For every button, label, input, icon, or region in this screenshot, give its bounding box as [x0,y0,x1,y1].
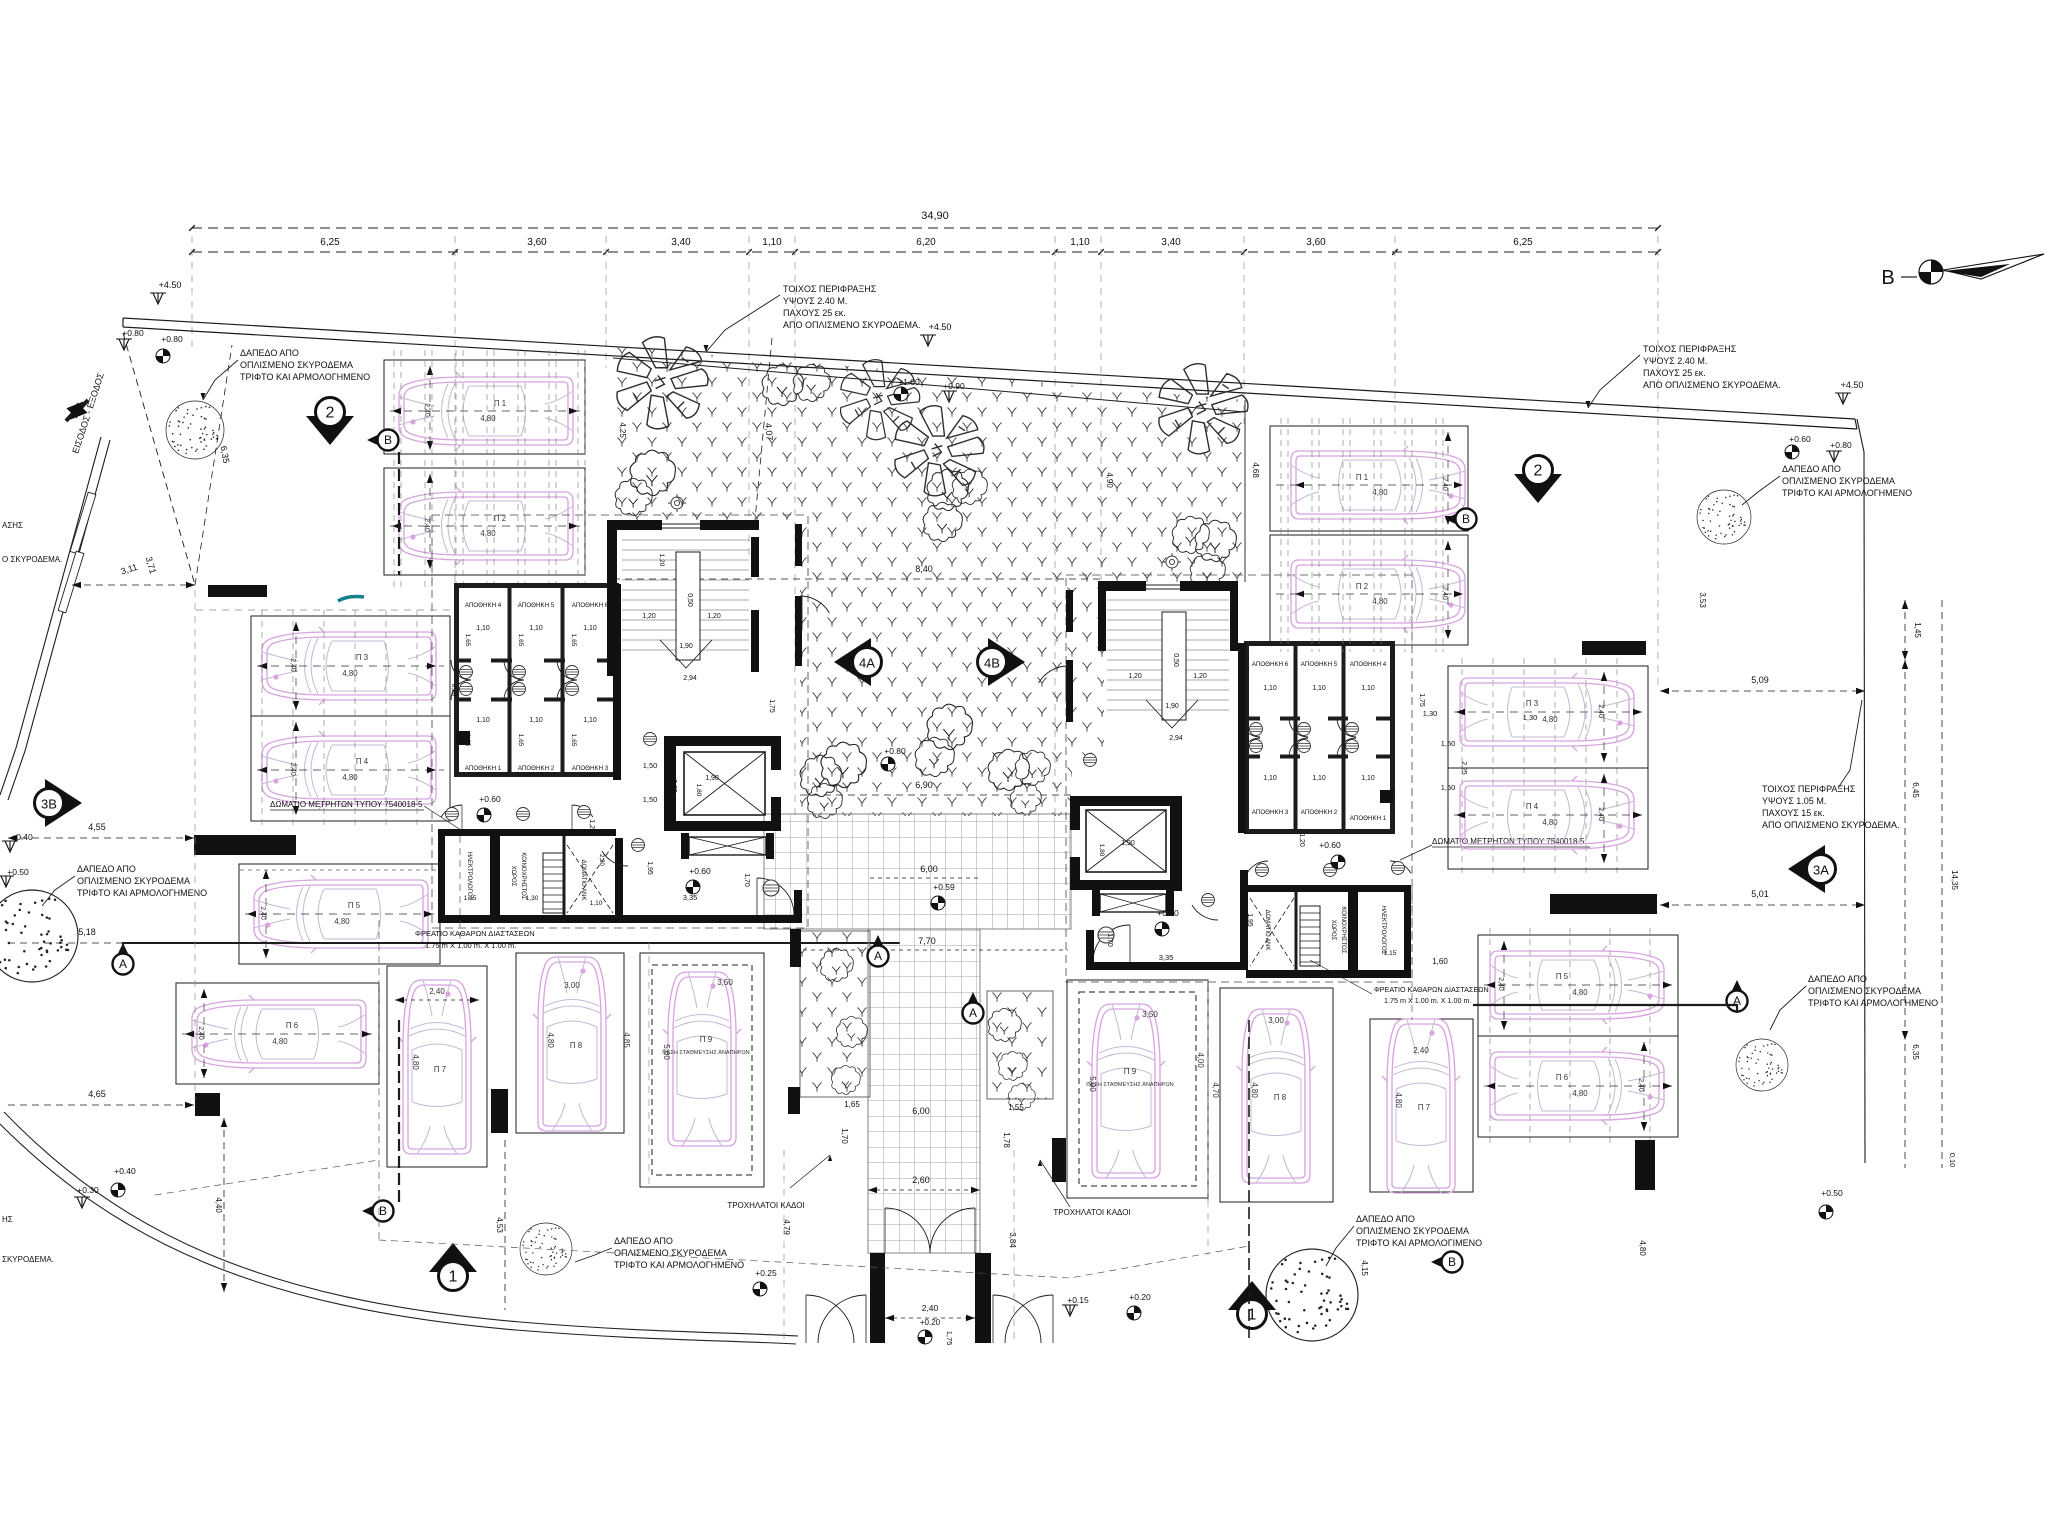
svg-text:B: B [384,433,392,447]
svg-text:ΟΠΛΙΣΜΕΝΟ ΣΚΥΡΟΔΕΜΑ: ΟΠΛΙΣΜΕΝΟ ΣΚΥΡΟΔΕΜΑ [240,360,353,370]
svg-text:1,70: 1,70 [1106,933,1113,947]
svg-text:6,00: 6,00 [920,864,938,874]
svg-text:1,30: 1,30 [526,895,539,902]
svg-text:A: A [874,949,882,963]
svg-text:2,40: 2,40 [1597,807,1604,821]
svg-text:1,78: 1,78 [1002,1132,1011,1148]
svg-text:5,00: 5,00 [662,1044,671,1060]
svg-text:ΥΨΟΥΣ 2.40 Μ.: ΥΨΟΥΣ 2.40 Μ. [1643,356,1707,366]
svg-text:1,60: 1,60 [1432,957,1448,966]
svg-text:3,50: 3,50 [717,978,733,987]
svg-text:+1.00: +1.00 [898,377,920,387]
svg-text:2,40: 2,40 [1497,977,1504,991]
svg-text:1,65: 1,65 [464,634,471,647]
svg-text:2: 2 [326,405,335,422]
svg-text:3,84: 3,84 [1008,1232,1017,1248]
svg-text:3B: 3B [41,797,57,812]
svg-text:ΗΛΕΚΤΡΟΛΟΓΟΣ: ΗΛΕΚΤΡΟΛΟΓΟΣ [1380,906,1386,955]
svg-text:5,01: 5,01 [1751,889,1769,899]
svg-text:+0.80: +0.80 [122,328,144,338]
svg-text:+0.50: +0.50 [1821,1188,1843,1198]
svg-text:Π 3: Π 3 [356,653,368,662]
svg-text:Π 5: Π 5 [1556,972,1569,981]
svg-text:7,70: 7,70 [918,936,936,946]
svg-text:4,15: 4,15 [1360,1260,1369,1276]
svg-text:4,80: 4,80 [342,669,358,678]
svg-text:+0.59: +0.59 [933,882,955,892]
svg-text:1,10: 1,10 [1361,775,1375,782]
svg-text:1,10: 1,10 [1263,775,1277,782]
svg-text:2,40: 2,40 [1413,1046,1429,1055]
svg-text:ΔΑΠΕΔΟ ΑΠΟ: ΔΑΠΕΔΟ ΑΠΟ [614,1236,673,1246]
svg-text:2,40: 2,40 [289,658,296,672]
svg-text:4A: 4A [859,656,875,671]
svg-text:3,60: 3,60 [527,237,547,248]
svg-text:3,00: 3,00 [564,981,580,990]
svg-text:ΑΠΟΘΗΚΗ 1: ΑΠΟΘΗΚΗ 1 [465,765,502,772]
svg-text:ΠΑΧΟΥΣ 25 εκ.: ΠΑΧΟΥΣ 25 εκ. [1643,368,1706,378]
svg-text:ΤΡΙΦΤΟ ΚΑΙ ΑΡΜΟΛΟΓΗΜΕΝΟ: ΤΡΙΦΤΟ ΚΑΙ ΑΡΜΟΛΟΓΗΜΕΝΟ [77,888,207,898]
svg-text:A: A [969,1006,977,1020]
svg-text:1,10: 1,10 [1312,685,1326,692]
svg-text:1,20: 1,20 [1128,673,1142,680]
svg-text:0,10: 0,10 [1948,1153,1957,1168]
svg-text:1,50: 1,50 [643,795,658,804]
svg-text:Π 9: Π 9 [700,1035,713,1044]
svg-text:ΟΠΛΙΣΜΕΝΟ ΣΚΥΡΟΔΕΜΑ: ΟΠΛΙΣΜΕΝΟ ΣΚΥΡΟΔΕΜΑ [1808,986,1921,996]
svg-text:ΤΡΙΦΤΟ ΚΑΙ ΑΡΜΟΛΟΓΗΜΕΝΟ: ΤΡΙΦΤΟ ΚΑΙ ΑΡΜΟΛΟΓΗΜΕΝΟ [1782,488,1912,498]
svg-text:1,10: 1,10 [583,717,597,724]
svg-text:1,10: 1,10 [529,625,543,632]
svg-text:4,79: 4,79 [782,1219,791,1235]
svg-text:4,80: 4,80 [1250,1082,1259,1098]
svg-text:ΑΠΟΘΗΚΗ 4: ΑΠΟΘΗΚΗ 4 [1350,661,1387,668]
svg-text:+4.50: +4.50 [929,322,952,332]
svg-text:5,18: 5,18 [78,927,96,937]
svg-text:Π 7: Π 7 [434,1065,446,1074]
svg-text:2,40: 2,40 [1597,704,1604,718]
svg-text:+0.60: +0.60 [1157,908,1179,918]
svg-text:ΑΠΟΘΗΚΗ 6: ΑΠΟΘΗΚΗ 6 [1252,661,1289,668]
svg-text:ΗΛΕΚΤΡΟΛΟΓΟΣ: ΗΛΕΚΤΡΟΛΟΓΟΣ [466,852,472,901]
svg-text:3,50: 3,50 [1142,1010,1158,1019]
svg-text:Π 8: Π 8 [570,1041,582,1050]
svg-text:4,00: 4,00 [1196,1052,1205,1068]
svg-text:ΑΠΟΘΗΚΗ 3: ΑΠΟΘΗΚΗ 3 [572,765,609,772]
svg-text:ΗΣ: ΗΣ [2,1215,13,1224]
svg-text:4,55: 4,55 [88,822,106,832]
svg-text:ΤΡΙΦΤΟ ΚΑΙ ΑΡΜΟΛΟΓΗΜΕΝΟ: ΤΡΙΦΤΟ ΚΑΙ ΑΡΜΟΛΟΓΗΜΕΝΟ [240,372,370,382]
svg-text:0,90: 0,90 [450,684,457,697]
svg-text:4,90: 4,90 [1105,472,1114,488]
svg-text:+0.60: +0.60 [1319,840,1341,850]
svg-text:4,80: 4,80 [1542,715,1558,724]
svg-text:3,40: 3,40 [1161,237,1181,248]
svg-text:ΦΡΕΑΤΙΟ ΚΑΘΑΡΩΝ ΔΙΑΣΤΑΣΕΩΝ: ΦΡΕΑΤΙΟ ΚΑΘΑΡΩΝ ΔΙΑΣΤΑΣΕΩΝ [415,929,535,938]
svg-text:ΟΠΛΙΣΜΕΝΟ ΣΚΥΡΟΔΕΜΑ: ΟΠΛΙΣΜΕΝΟ ΣΚΥΡΟΔΕΜΑ [1356,1226,1469,1236]
svg-text:Π 6: Π 6 [1556,1073,1568,1082]
svg-text:2,40: 2,40 [429,987,445,996]
svg-text:4,80: 4,80 [342,773,358,782]
svg-text:ΔΑΠΕΔΟ ΑΠΟ: ΔΑΠΕΔΟ ΑΠΟ [240,348,299,358]
svg-text:4,68: 4,68 [1251,462,1260,478]
svg-text:4,80: 4,80 [546,1032,555,1048]
svg-text:B: B [1462,512,1470,526]
svg-text:1,75: 1,75 [945,1331,954,1346]
svg-text:0,50: 0,50 [1172,653,1179,667]
svg-text:3,40: 3,40 [671,237,691,248]
svg-text:ΥΨΟΥΣ 2.40 Μ.: ΥΨΟΥΣ 2.40 Μ. [783,296,847,306]
svg-text:+4.50: +4.50 [1841,380,1864,390]
svg-text:ΑΠΟΘΗΚΗ 4: ΑΠΟΘΗΚΗ 4 [465,602,502,609]
svg-text:1,10: 1,10 [1312,775,1326,782]
svg-text:Π 4: Π 4 [356,757,369,766]
svg-text:4,40: 4,40 [214,1197,223,1213]
svg-text:1,65: 1,65 [517,734,524,747]
svg-text:+0.80: +0.80 [1830,440,1852,450]
svg-text:Π 2: Π 2 [1356,582,1368,591]
svg-text:+0.25: +0.25 [755,1268,777,1278]
svg-text:ΧΩΡΟΣ: ΧΩΡΟΣ [1330,920,1336,941]
svg-text:Π 7: Π 7 [1418,1103,1430,1112]
svg-text:ΔΑΠΕΔΟ ΑΠΟ: ΔΑΠΕΔΟ ΑΠΟ [77,864,136,874]
svg-text:4,80: 4,80 [272,1037,288,1046]
svg-text:ΘΕΣΗ ΣΤΑΘΜΕΥΣΗΣ ΑΝΑΠΗΡΩΝ: ΘΕΣΗ ΣΤΑΘΜΕΥΣΗΣ ΑΝΑΠΗΡΩΝ [662,1050,749,1056]
svg-text:2,40: 2,40 [1637,1078,1644,1092]
svg-text:4,70: 4,70 [1211,1082,1220,1098]
svg-text:4,85: 4,85 [622,1032,631,1048]
svg-text:2,94: 2,94 [1169,735,1183,742]
svg-text:2,40: 2,40 [922,1303,939,1313]
svg-text:1,75: 1,75 [768,699,775,713]
svg-text:ΤΟΙΧΟΣ ΠΕΡΙΦΡΑΞΗΣ: ΤΟΙΧΟΣ ΠΕΡΙΦΡΑΞΗΣ [1762,784,1856,794]
svg-text:ΠΑΧΟΥΣ 25 εκ.: ΠΑΧΟΥΣ 25 εκ. [783,308,846,318]
svg-text:6,90: 6,90 [915,780,933,790]
svg-text:ΦΡΕΑΤΙΟ ΚΑΘΑΡΩΝ ΔΙΑΣΤΑΣΕΩΝ: ΦΡΕΑΤΙΟ ΚΑΘΑΡΩΝ ΔΙΑΣΤΑΣΕΩΝ [1374,985,1489,994]
svg-text:5,00: 5,00 [1088,1076,1097,1092]
svg-text:+0.90: +0.90 [943,381,965,391]
svg-text:ΤΡΙΦΤΟ ΚΑΙ ΑΡΜΟΛΟΓΗΜΕΝΟ: ΤΡΙΦΤΟ ΚΑΙ ΑΡΜΟΛΟΓΗΜΕΝΟ [1808,998,1938,1008]
svg-text:1,65: 1,65 [570,634,577,647]
svg-text:1,20: 1,20 [642,613,656,620]
svg-text:1,65: 1,65 [570,734,577,747]
svg-text:1,90: 1,90 [679,643,693,650]
svg-text:1,10: 1,10 [583,625,597,632]
svg-text:34,90: 34,90 [921,210,949,222]
svg-text:1,10: 1,10 [1070,237,1090,248]
svg-text:+0.80: +0.80 [161,334,183,344]
svg-text:4,80: 4,80 [1572,1089,1588,1098]
svg-text:Π 5: Π 5 [348,901,361,910]
svg-text:2,40: 2,40 [423,403,430,417]
svg-text:ΔΩΜΑΤΙΟ ΑΝΚ: ΔΩΜΑΤΙΟ ΑΝΚ [1264,910,1270,951]
svg-text:Π 9: Π 9 [1124,1067,1137,1076]
svg-text:1,30: 1,30 [1523,713,1538,722]
svg-text:Π 6: Π 6 [286,1021,298,1030]
svg-text:+0.20: +0.20 [920,1318,941,1327]
svg-text:ΧΩΡΟΣ: ΧΩΡΟΣ [510,866,516,887]
svg-text:1,90: 1,90 [705,775,719,782]
svg-text:ΔΑΠΕΔΟ ΑΠΟ: ΔΑΠΕΔΟ ΑΠΟ [1808,974,1867,984]
svg-text:6,45: 6,45 [1911,782,1920,798]
svg-text:ΟΠΛΙΣΜΕΝΟ ΣΚΥΡΟΔΕΜΑ: ΟΠΛΙΣΜΕΝΟ ΣΚΥΡΟΔΕΜΑ [1782,476,1895,486]
svg-text:ΑΠΟ ΟΠΛΙΣΜΕΝΟ ΣΚΥΡΟΔΕΜΑ.: ΑΠΟ ΟΠΛΙΣΜΕΝΟ ΣΚΥΡΟΔΕΜΑ. [1643,380,1780,390]
svg-text:1,95: 1,95 [1246,913,1253,927]
svg-text:1,80: 1,80 [1098,844,1105,857]
svg-text:1,20: 1,20 [658,554,665,567]
svg-text:+0.40: +0.40 [114,1166,136,1176]
svg-text:4,80: 4,80 [1372,488,1388,497]
svg-text:1,45: 1,45 [1913,622,1922,638]
svg-text:ΤΟΙΧΟΣ ΠΕΡΙΦΡΑΞΗΣ: ΤΟΙΧΟΣ ΠΕΡΙΦΡΑΞΗΣ [783,284,877,294]
svg-text:8,40: 8,40 [915,564,933,574]
svg-text:+4.50: +4.50 [159,280,182,290]
svg-text:1,10: 1,10 [476,717,490,724]
svg-text:A: A [119,957,127,971]
svg-text:ΠΑΧΟΥΣ 15 εκ.: ΠΑΧΟΥΣ 15 εκ. [1762,808,1825,818]
svg-text:4,80: 4,80 [1572,988,1588,997]
svg-text:ΣΚΥΡΟΔΕΜΑ.: ΣΚΥΡΟΔΕΜΑ. [2,1255,54,1264]
svg-text:ΑΣΗΣ: ΑΣΗΣ [2,521,23,530]
svg-text:1,20: 1,20 [1193,673,1207,680]
svg-text:1,10: 1,10 [529,717,543,724]
svg-text:2,40: 2,40 [1441,586,1448,600]
svg-text:1,20: 1,20 [707,613,721,620]
svg-text:B: B [1448,1255,1456,1269]
svg-text:6,25: 6,25 [1513,237,1533,248]
svg-text:ΑΠΟΘΗΚΗ 1: ΑΠΟΘΗΚΗ 1 [1350,815,1387,822]
svg-text:3A: 3A [1813,863,1829,878]
svg-text:ΤΡΙΦΤΟ ΚΑΙ ΑΡΜΟΛΟΓΙΜΕΝΟ: ΤΡΙΦΤΟ ΚΑΙ ΑΡΜΟΛΟΓΙΜΕΝΟ [1356,1238,1482,1248]
svg-text:4,80: 4,80 [1542,818,1558,827]
svg-text:ΘΕΣΗ ΣΤΑΘΜΕΥΣΗΣ ΑΝΑΠΗΡΩΝ: ΘΕΣΗ ΣΤΑΘΜΕΥΣΗΣ ΑΝΑΠΗΡΩΝ [1086,1082,1173,1088]
svg-text:3,35: 3,35 [1159,953,1174,962]
svg-text:ΑΠΟΘΗΚΗ 2: ΑΠΟΘΗΚΗ 2 [1301,809,1338,816]
svg-text:2,40: 2,40 [197,1026,204,1040]
svg-text:ΑΠΟΘΗΚΗ 2: ΑΠΟΘΗΚΗ 2 [518,765,555,772]
svg-text:14,35: 14,35 [1950,870,1959,891]
svg-text:+0.80: +0.80 [884,746,906,756]
svg-text:ΑΠΟΘΗΚΗ 5: ΑΠΟΘΗΚΗ 5 [1301,661,1338,668]
svg-text:ΑΠΟΘΗΚΗ 3: ΑΠΟΘΗΚΗ 3 [1252,809,1289,816]
svg-text:+0.15: +0.15 [1067,1295,1089,1305]
svg-text:Π 1: Π 1 [494,399,506,408]
svg-text:1,90: 1,90 [1165,703,1179,710]
svg-text:1,10: 1,10 [1361,685,1375,692]
svg-text:2,40: 2,40 [289,762,296,776]
svg-text:Π 3: Π 3 [1526,699,1538,708]
svg-text:1,30: 1,30 [1423,709,1438,718]
svg-text:+0.60: +0.60 [1789,434,1811,444]
svg-text:1,65: 1,65 [844,1100,860,1109]
svg-text:+0.60: +0.60 [689,866,711,876]
svg-text:ΑΠΟ ΟΠΛΙΣΜΕΝΟ ΣΚΥΡΟΔΕΜΑ.: ΑΠΟ ΟΠΛΙΣΜΕΝΟ ΣΚΥΡΟΔΕΜΑ. [783,320,920,330]
svg-text:ΔΑΠΕΔΟ ΑΠΟ: ΔΑΠΕΔΟ ΑΠΟ [1782,464,1841,474]
svg-text:ΥΨΟΥΣ 1.05 Μ.: ΥΨΟΥΣ 1.05 Μ. [1762,796,1826,806]
svg-text:ΑΠΟΘΗΚΗ 5: ΑΠΟΘΗΚΗ 5 [518,602,555,609]
svg-text:B: B [379,1204,387,1218]
svg-text:1,20: 1,20 [588,819,595,833]
svg-text:Π 4: Π 4 [1526,802,1539,811]
svg-text:ΚΟΙΝΟΧΡΗΣΤΟΣ: ΚΟΙΝΟΧΡΗΣΤΟΣ [1340,906,1346,953]
svg-text:2,94: 2,94 [683,675,697,682]
svg-text:0,50: 0,50 [686,593,693,607]
svg-text:3,60: 3,60 [1306,237,1326,248]
svg-text:1,70: 1,70 [743,873,750,887]
svg-text:1,10: 1,10 [476,625,490,632]
svg-text:ΟΠΛΙΣΜΕΝΟ ΣΚΥΡΟΔΕΜΑ: ΟΠΛΙΣΜΕΝΟ ΣΚΥΡΟΔΕΜΑ [77,876,190,886]
svg-text:1,15: 1,15 [1384,950,1397,957]
svg-text:ΚΟΙΝΟΧΡΗΣΤΟΣ: ΚΟΙΝΟΧΡΗΣΤΟΣ [520,852,526,899]
svg-text:Ο ΣΚΥΡΟΔΕΜΑ.: Ο ΣΚΥΡΟΔΕΜΑ. [2,555,62,564]
svg-text:4,80: 4,80 [1638,1240,1647,1256]
svg-text:2,60: 2,60 [912,1175,930,1185]
svg-text:6,00: 6,00 [912,1106,930,1116]
svg-text:3,00: 3,00 [1268,1016,1284,1025]
svg-text:1,95: 1,95 [646,861,653,875]
svg-text:3,53: 3,53 [1698,592,1707,608]
svg-text:4B: 4B [984,656,1000,671]
svg-text:1,20: 1,20 [1298,833,1305,847]
svg-text:ΑΠΟΘΗΚΗ 6: ΑΠΟΘΗΚΗ 6 [572,602,609,609]
svg-text:4,80: 4,80 [411,1054,420,1070]
svg-text:4,25: 4,25 [618,422,627,438]
svg-text:1,70: 1,70 [840,1128,849,1144]
svg-text:1,75: 1,75 [1418,693,1425,707]
svg-text:B: B [1881,267,1894,289]
svg-text:2: 2 [1534,463,1543,480]
svg-text:3,35: 3,35 [683,893,698,902]
svg-text:1,55: 1,55 [1008,1103,1024,1112]
svg-text:+0.60: +0.60 [479,794,501,804]
svg-text:6,20: 6,20 [916,237,936,248]
svg-text:1.75 m X 1.00 m. X 1.00 m.: 1.75 m X 1.00 m. X 1.00 m. [1384,996,1472,1005]
svg-text:2,40: 2,40 [259,906,266,920]
svg-text:+0.20: +0.20 [1129,1292,1151,1302]
svg-text:Π 1: Π 1 [1356,473,1368,482]
svg-text:ΤΡΙΦΤΟ ΚΑΙ ΑΡΜΟΛΟΓΗΜΕΝΟ: ΤΡΙΦΤΟ ΚΑΙ ΑΡΜΟΛΟΓΗΜΕΝΟ [614,1260,744,1270]
svg-text:1,10: 1,10 [762,237,782,248]
svg-text:1,90: 1,90 [1121,840,1135,847]
svg-text:2,40: 2,40 [423,518,430,532]
svg-text:1.75 m X 1.00 m. X 1.00 m.: 1.75 m X 1.00 m. X 1.00 m. [425,941,516,950]
svg-text:6,35: 6,35 [1911,1044,1920,1060]
svg-text:ΔΑΠΕΔΟ ΑΠΟ: ΔΑΠΕΔΟ ΑΠΟ [1356,1214,1415,1224]
svg-text:4,80: 4,80 [1394,1092,1403,1108]
svg-text:4,65: 4,65 [88,1089,106,1099]
svg-text:2,40: 2,40 [1441,477,1448,491]
svg-text:ΤΟΙΧΟΣ ΠΕΡΙΦΡΑΞΗΣ: ΤΟΙΧΟΣ ΠΕΡΙΦΡΑΞΗΣ [1643,344,1737,354]
svg-text:ΤΡΟΧΗΛΑΤΟΙ ΚΑΔΟΙ: ΤΡΟΧΗΛΑΤΟΙ ΚΑΔΟΙ [727,1201,804,1210]
svg-text:1,50: 1,50 [643,761,658,770]
svg-text:1,10: 1,10 [590,900,603,907]
svg-text:1,80: 1,80 [695,784,702,797]
svg-text:1: 1 [449,1269,458,1286]
svg-text:2,20: 2,20 [598,854,604,866]
svg-text:ΟΠΛΙΣΜΕΝΟ ΣΚΥΡΟΔΕΜΑ: ΟΠΛΙΣΜΕΝΟ ΣΚΥΡΟΔΕΜΑ [614,1248,727,1258]
svg-text:Π 8: Π 8 [1274,1093,1286,1102]
svg-text:+0.30: +0.30 [77,1185,99,1195]
svg-text:4,53: 4,53 [495,1217,504,1233]
svg-text:1,65: 1,65 [517,634,524,647]
svg-text:6,25: 6,25 [320,237,340,248]
svg-text:1,10: 1,10 [1263,685,1277,692]
svg-text:ΑΠΟ ΟΠΛΙΣΜΕΝΟ ΣΚΥΡΟΔΕΜΑ.: ΑΠΟ ΟΠΛΙΣΜΕΝΟ ΣΚΥΡΟΔΕΜΑ. [1762,820,1899,830]
svg-text:4,80: 4,80 [334,917,350,926]
svg-text:ΤΡΟΧΗΛΑΤΟΙ ΚΑΔΟΙ: ΤΡΟΧΗΛΑΤΟΙ ΚΑΔΟΙ [1053,1208,1130,1217]
svg-text:4,80: 4,80 [1372,597,1388,606]
svg-text:5,09: 5,09 [1751,675,1769,685]
svg-text:1,15: 1,15 [464,895,477,902]
